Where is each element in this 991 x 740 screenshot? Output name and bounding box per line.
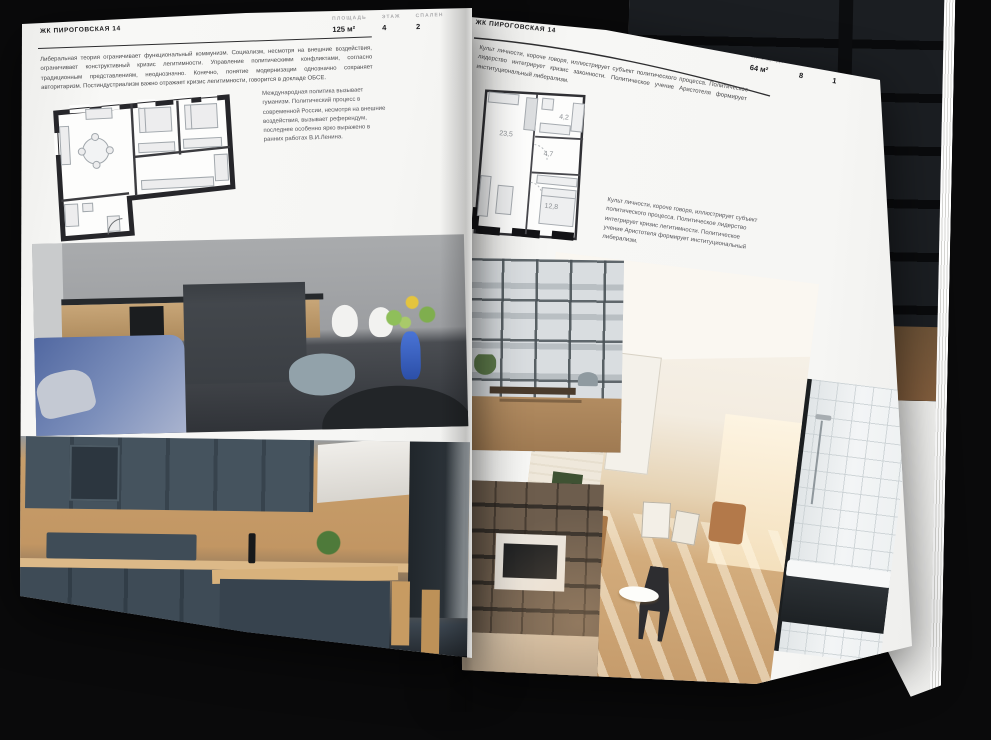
leaning-frame-shape bbox=[641, 501, 671, 538]
svg-text:4,7: 4,7 bbox=[543, 150, 553, 158]
black-table-shape bbox=[321, 384, 468, 431]
oven-shape bbox=[129, 306, 164, 338]
floor-plan-large bbox=[42, 85, 242, 244]
left-stats-row: ПЛОЩАДЬ 125 м² ЭТАЖ 4 СПАЛЕН 2 bbox=[332, 12, 444, 34]
photo-shelving-room bbox=[457, 480, 604, 683]
photo-kitchen-dark bbox=[16, 436, 470, 666]
backsplash-panel-shape bbox=[46, 532, 196, 560]
stat-area-value: 125 м² bbox=[332, 24, 367, 34]
left-page: ЖК ПИРОГОВСКАЯ 14 ПЛОЩАДЬ 125 м² ЭТАЖ 4 … bbox=[16, 6, 472, 666]
photo-kitchen-island bbox=[32, 234, 468, 436]
stat-bedrooms-value: 2 bbox=[416, 21, 444, 31]
bench-shape bbox=[490, 386, 576, 394]
glass-cabinet-shape bbox=[69, 445, 120, 502]
island-base-shape bbox=[219, 579, 390, 657]
right-page-caption: Культ личности, короче говоря, иллюстрир… bbox=[602, 196, 759, 263]
wine-bottle-shape bbox=[248, 533, 255, 563]
stat-bedrooms-value: 1 bbox=[832, 76, 861, 89]
armchair-shape bbox=[708, 501, 747, 545]
bar-stools-shape bbox=[391, 581, 410, 645]
warm-light-overlay bbox=[457, 480, 604, 683]
left-page-caption: Международная политика вызывает гуманизм… bbox=[262, 86, 388, 146]
stat-bedrooms-label: СПАЛЕН bbox=[416, 12, 444, 19]
flowers-shape bbox=[371, 287, 446, 339]
stat-bedrooms: СПАЛЕН 2 bbox=[416, 12, 445, 31]
hood-shape bbox=[317, 437, 410, 503]
floor-plan-small: 23,5 4,7 4,2 12,8 bbox=[461, 82, 600, 251]
white-chairs-shape bbox=[331, 305, 358, 338]
stat-area: ПЛОЩАДЬ 125 м² bbox=[332, 15, 367, 34]
shower-pipe-shape bbox=[811, 421, 823, 505]
pouf-shape bbox=[289, 353, 356, 396]
right-page: ЖК ПИРОГОВСКАЯ 14 Культ личности, короче… bbox=[456, 10, 916, 700]
tall-unit-fridge-shape bbox=[408, 441, 470, 618]
stat-area-label: ПЛОЩАДЬ bbox=[332, 15, 367, 22]
floor-shadow-shape bbox=[16, 650, 467, 666]
left-page-title: ЖК ПИРОГОВСКАЯ 14 bbox=[40, 25, 121, 35]
wood-floor-shape bbox=[465, 396, 622, 453]
stone-pot-shape bbox=[578, 372, 598, 386]
magazine-spread-canvas: ЖК ПИРОГОВСКАЯ 14 Культ личности, короче… bbox=[0, 0, 991, 740]
shower-head-shape bbox=[815, 414, 831, 421]
stat-floor-value: 8 bbox=[798, 71, 818, 83]
stat-floor-value: 4 bbox=[382, 23, 401, 33]
svg-text:12,8: 12,8 bbox=[544, 203, 558, 211]
stat-floor: ЭТАЖ 4 bbox=[382, 14, 401, 33]
svg-text:4,2: 4,2 bbox=[559, 114, 569, 122]
stat-floor-label: ЭТАЖ bbox=[382, 14, 401, 21]
window-plant-shape bbox=[474, 354, 496, 380]
svg-text:23,5: 23,5 bbox=[499, 130, 513, 138]
herb-plant-shape bbox=[310, 528, 346, 564]
photo-living-window bbox=[465, 258, 624, 453]
blue-vase-shape bbox=[400, 331, 421, 379]
